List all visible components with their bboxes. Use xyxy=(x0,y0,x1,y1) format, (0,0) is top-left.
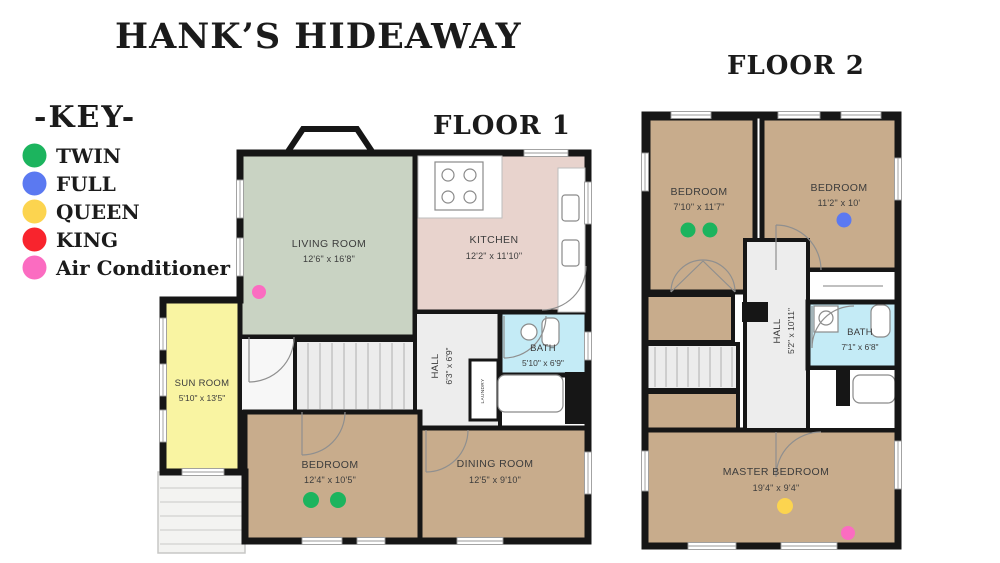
key-label-full: FULL xyxy=(56,172,116,196)
twin-marker xyxy=(330,492,346,508)
sun-room-name: SUN ROOM xyxy=(175,378,230,389)
laundry-closet: LAUNDRY xyxy=(470,360,498,420)
floorplan-page: HANK’S HIDEAWAY -KEY- TWIN FULL QUEEN xyxy=(0,0,1000,563)
living-room-name: LIVING ROOM xyxy=(292,238,366,250)
floor2-staircase xyxy=(645,344,738,390)
queen-dot-icon xyxy=(22,199,47,224)
air-conditioner-dot-icon xyxy=(22,255,47,280)
bedroom-right-dims: 11'2" x 10' xyxy=(818,198,861,208)
hall2-name: HALL xyxy=(772,319,783,344)
key-label-queen: QUEEN xyxy=(56,200,140,224)
kitchen-dims: 12'2" x 11'10" xyxy=(466,251,523,261)
tub-alcove xyxy=(810,368,896,428)
hall-name: HALL xyxy=(430,354,441,379)
bedroom-dims: 12'4" x 10'5" xyxy=(304,475,356,485)
closet xyxy=(645,295,733,342)
kitchen-sink-icon xyxy=(562,195,579,221)
hall-dims: 6'3" x 6'9" xyxy=(444,347,454,384)
floor2-title: FLOOR 2 xyxy=(727,51,855,81)
wall-stub2 xyxy=(836,368,850,406)
key-label-king: KING xyxy=(56,228,118,252)
key-label-twin: TWIN xyxy=(56,144,121,168)
bath2-dims: 7'1" x 6'8" xyxy=(841,342,878,352)
living-room-dims: 12'6" x 16'8" xyxy=(303,254,355,264)
toilet-icon xyxy=(542,318,559,346)
sun-room-dims: 5'10" x 13'5" xyxy=(179,393,226,403)
bedroom-left-dims: 7'10" x 11'7" xyxy=(673,202,724,212)
twin-marker xyxy=(681,223,696,238)
floor1-staircase xyxy=(295,340,415,412)
master-bedroom-dims: 19'4" x 9'4" xyxy=(753,483,800,493)
bedroom-left-name: BEDROOM xyxy=(670,186,727,198)
twin-marker xyxy=(303,492,319,508)
bedroom-right-name: BEDROOM xyxy=(810,182,867,194)
toilet2-icon xyxy=(871,305,890,337)
king-dot-icon xyxy=(22,227,47,252)
ac-marker xyxy=(841,526,855,540)
bath-name: BATH xyxy=(530,343,556,354)
hall2-dims: 5'2" x 10'11" xyxy=(786,308,796,354)
queen-marker xyxy=(777,498,793,514)
full-dot-icon xyxy=(22,171,47,196)
hall-wall-stub xyxy=(742,302,768,322)
master-nook xyxy=(645,392,738,430)
dining-room-dims: 12'5" x 9'10" xyxy=(469,475,521,485)
floor1-plan: LAUNDRY xyxy=(152,120,602,560)
kitchen-name: KITCHEN xyxy=(470,234,519,246)
floor2-plan: BEDROOM 7'10" x 11'7" BEDROOM 11'2" x 10… xyxy=(633,103,913,558)
bath-dims: 5'10" x 6'9" xyxy=(522,358,564,368)
bath-sink-icon xyxy=(521,324,537,340)
master-bedroom-name: MASTER BEDROOM xyxy=(723,466,830,478)
entry-landing xyxy=(242,339,295,410)
laundry-label: LAUNDRY xyxy=(480,378,486,403)
stove-icon xyxy=(435,162,483,210)
floor1-porch xyxy=(158,472,245,553)
page-title: HANK’S HIDEAWAY xyxy=(115,16,515,57)
ac-marker xyxy=(252,285,266,299)
bathtub xyxy=(498,375,563,412)
bedroom-name: BEDROOM xyxy=(301,459,358,471)
bath2-name: BATH xyxy=(847,327,873,338)
dining-room-name: DINING ROOM xyxy=(457,458,534,470)
kitchen-sink2-icon xyxy=(562,240,579,266)
bathtub2 xyxy=(853,375,895,403)
full-marker xyxy=(837,213,852,228)
twin-marker xyxy=(703,223,718,238)
twin-dot-icon xyxy=(22,143,47,168)
